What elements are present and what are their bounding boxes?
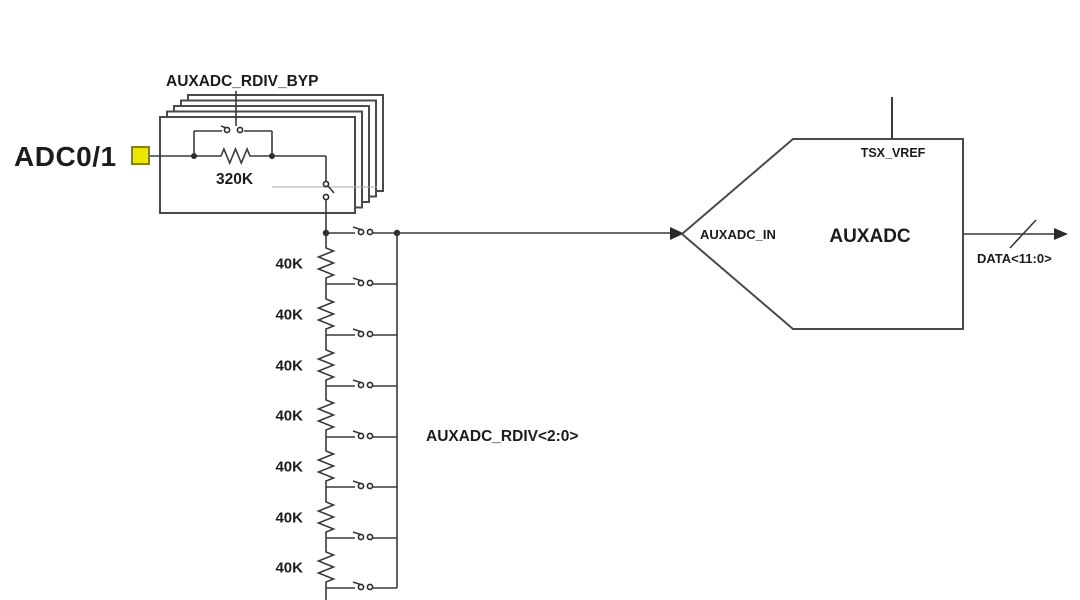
rdiv-ladder: 40K40K40K40K40K40K40K — [275, 233, 397, 600]
rdiv-ladder-chain — [319, 233, 334, 600]
adc-output: DATA<11:0> — [963, 220, 1068, 266]
ladder-resistor-label: 40K — [275, 256, 303, 273]
vref-pin-label: TSX_VREF — [861, 146, 926, 160]
switch-contact — [358, 433, 363, 438]
schematic-page: 320K AUXADC_RDIV_BYP ADC0/1 40K40K40K40K… — [0, 0, 1080, 600]
ladder-resistor-label: 40K — [275, 560, 303, 577]
adc-input-port-label: AUXADC_IN — [700, 227, 776, 242]
ladder-resistor-label: 40K — [275, 408, 303, 425]
rdiv-byp-label: AUXADC_RDIV_BYP — [166, 73, 318, 90]
ladder-resistor-label: 40K — [275, 510, 303, 527]
circuit-diagram: 320K AUXADC_RDIV_BYP ADC0/1 40K40K40K40K… — [0, 0, 1080, 600]
switch-contact — [367, 534, 372, 539]
switch-contact — [358, 534, 363, 539]
auxadc-block: TSX_VREF AUXADC_IN AUXADC — [682, 97, 963, 329]
switch-contact — [367, 280, 372, 285]
switch-contact — [358, 584, 363, 589]
ladder-tap-switch — [326, 532, 397, 540]
switch-contact — [323, 181, 328, 186]
switch-contact — [367, 331, 372, 336]
ladder-tap-switch — [326, 329, 397, 337]
switch-contact — [358, 483, 363, 488]
adc-name-label: AUXADC — [829, 226, 911, 247]
switch-contact — [367, 382, 372, 387]
switch-contact — [367, 584, 372, 589]
ladder-resistor-label: 40K — [275, 358, 303, 375]
top-tap-switch — [353, 227, 373, 235]
output-bus-label: DATA<11:0> — [977, 251, 1052, 266]
switch-contact — [224, 127, 229, 132]
ladder-tap-switch — [326, 431, 397, 439]
ladder-tap-switch — [326, 278, 397, 286]
resistor-value-label: 320K — [216, 171, 254, 188]
switch-contact — [358, 229, 363, 234]
switch-contact — [367, 483, 372, 488]
output-arrowhead — [1054, 228, 1068, 240]
input-pad — [132, 147, 149, 164]
rdiv-control-label: AUXADC_RDIV<2:0> — [426, 428, 578, 445]
switch-contact — [237, 127, 242, 132]
switch-contact — [323, 194, 328, 199]
ladder-tap-switch — [326, 380, 397, 388]
input-pin-label: ADC0/1 — [14, 141, 117, 172]
switch-contact — [367, 433, 372, 438]
ladder-resistor-label: 40K — [275, 307, 303, 324]
switch-contact — [358, 382, 363, 387]
ladder-tap-switch — [326, 481, 397, 489]
ladder-resistor-label: 40K — [275, 459, 303, 476]
ladder-tap-switch — [326, 582, 397, 590]
switch-contact — [367, 229, 372, 234]
switch-contact — [358, 280, 363, 285]
switch-contact — [358, 331, 363, 336]
